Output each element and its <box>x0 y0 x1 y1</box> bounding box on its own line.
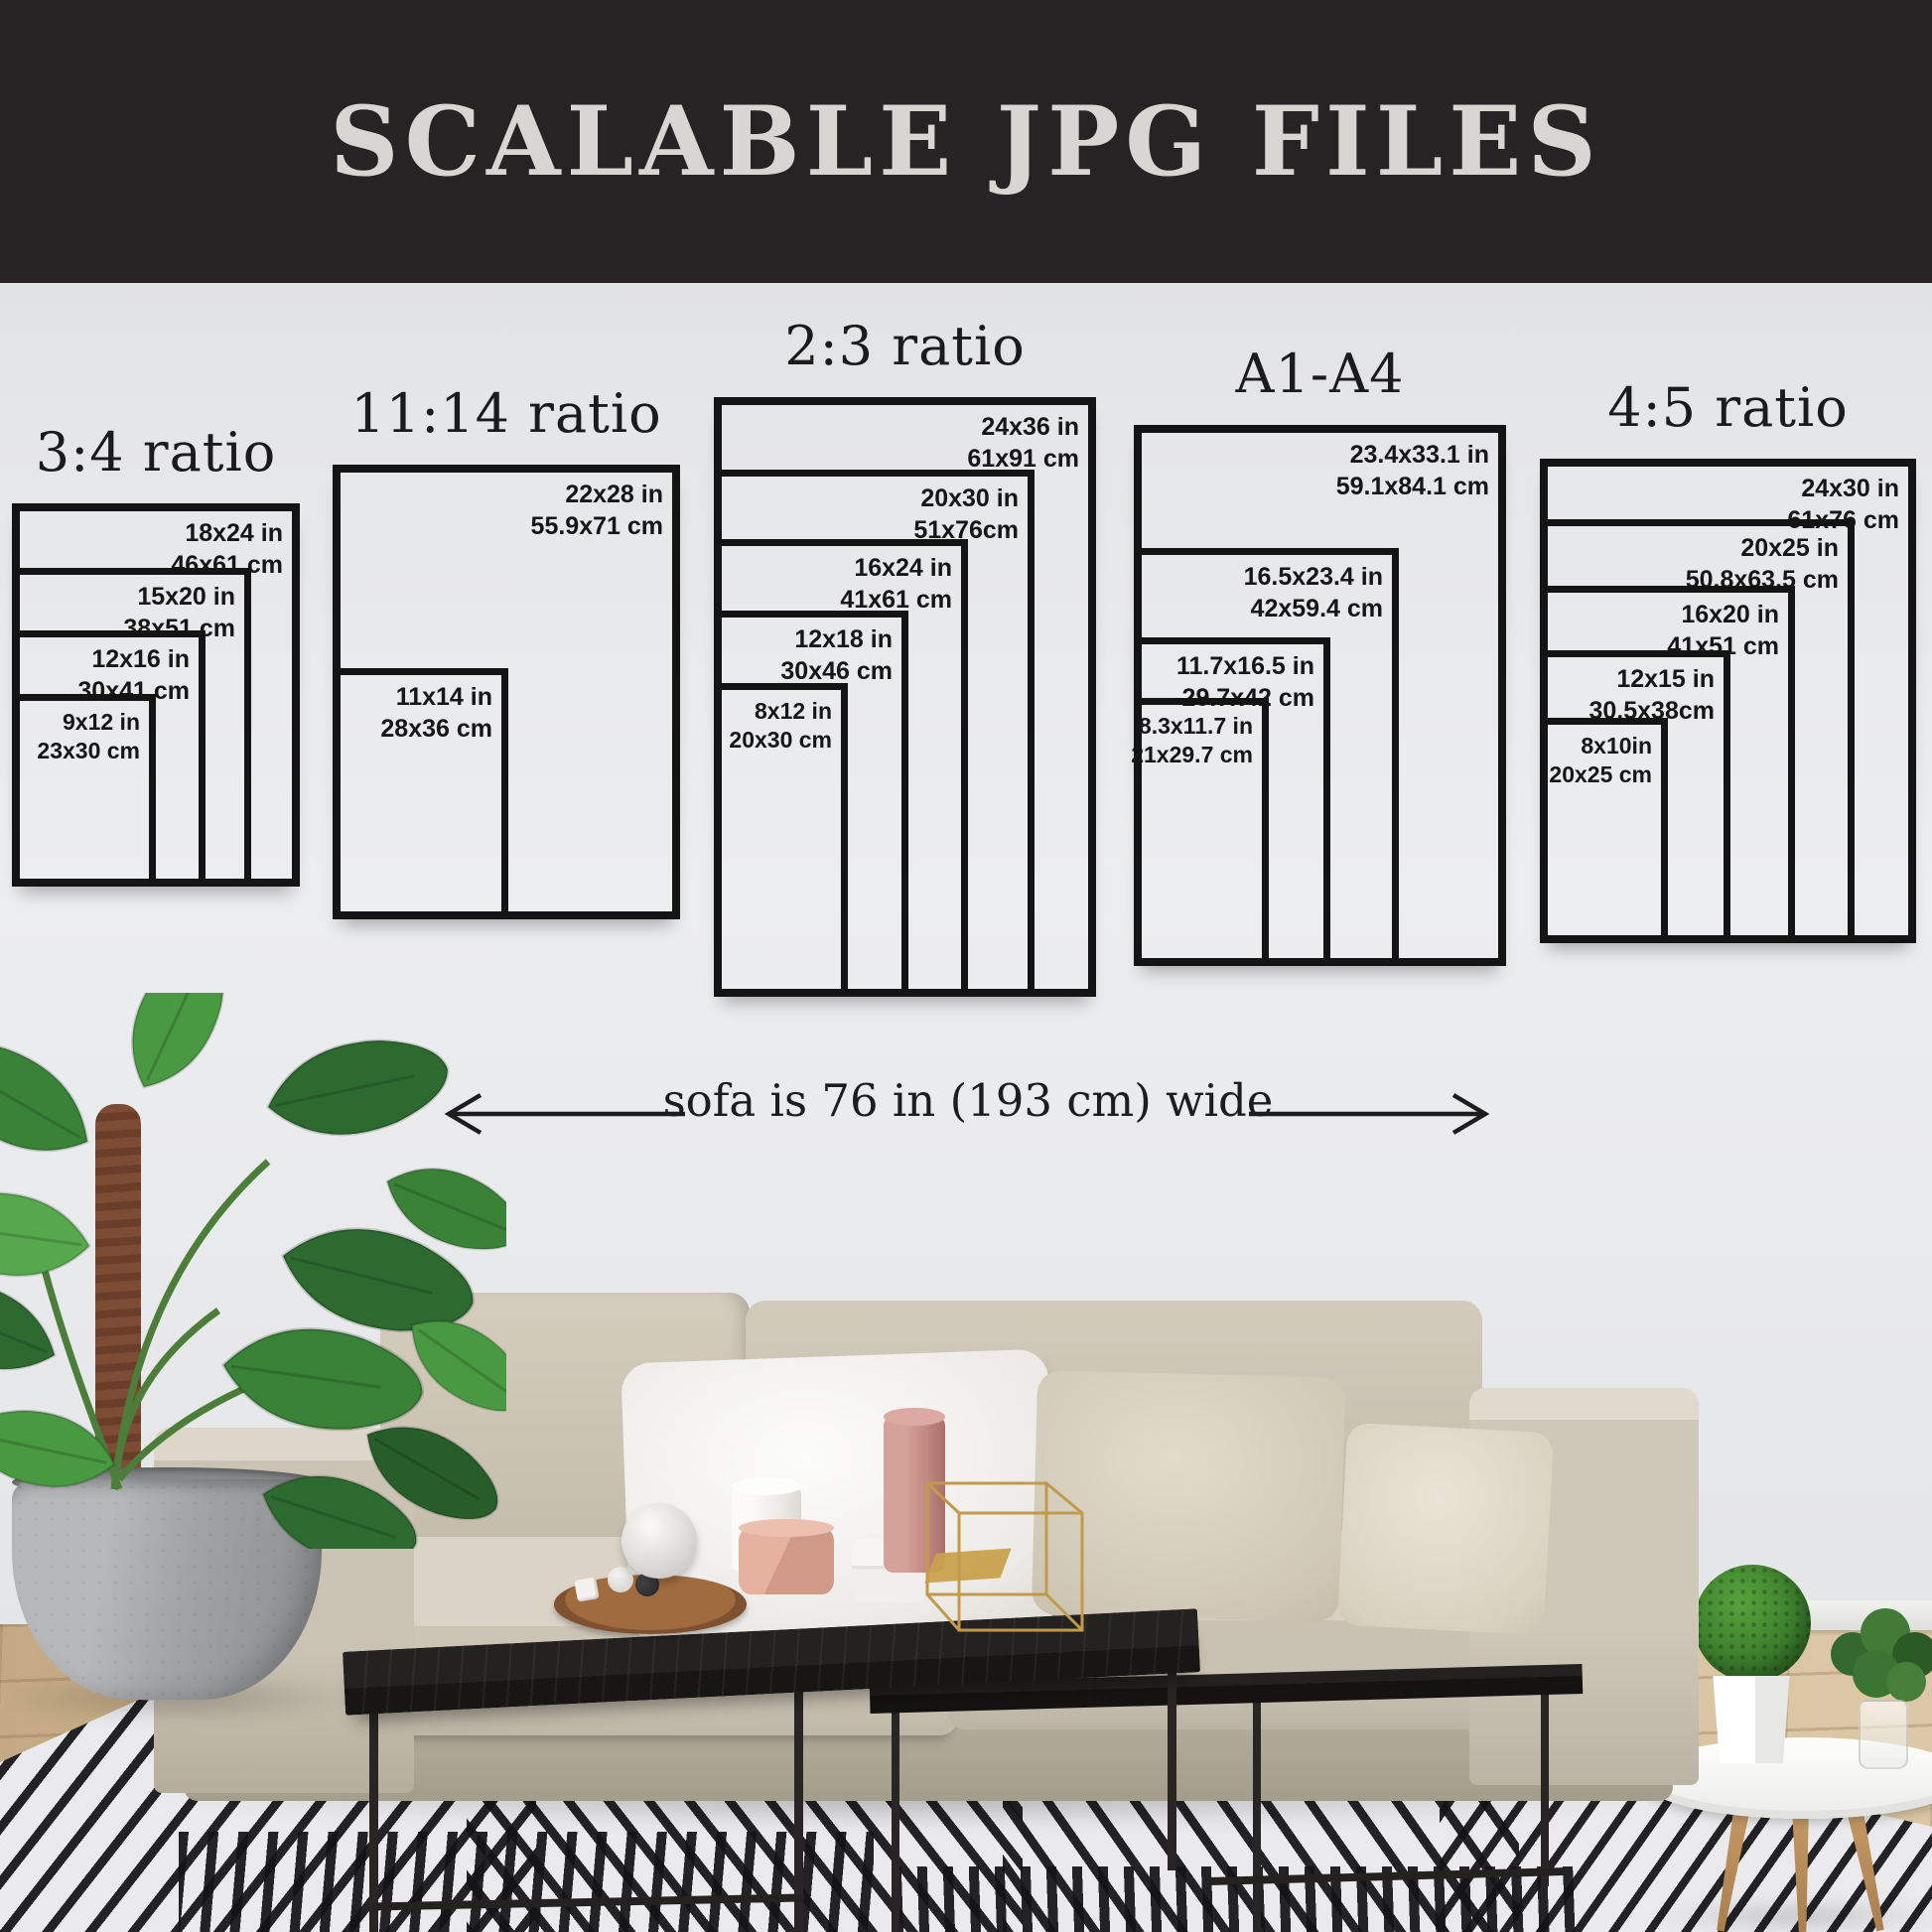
ratio-group-title: 4:5 ratio <box>1607 376 1849 439</box>
size-cm: 20x25 cm <box>1549 760 1652 789</box>
size-inches: 15x20 in <box>123 582 235 614</box>
coffee-table-leg <box>1168 1656 1176 1870</box>
white-planter <box>1710 1676 1793 1763</box>
size-inches: 16x20 in <box>1667 600 1779 631</box>
size-inches: 8x12 in <box>729 697 832 726</box>
size-inches: 18x24 in <box>171 518 283 550</box>
cream-pillow <box>1337 1423 1554 1636</box>
size-inches: 8.3x11.7 in <box>1131 712 1253 741</box>
size-inches: 12x15 in <box>1588 664 1715 696</box>
size-label: 9x12 in23x30 cm <box>37 708 140 765</box>
size-inches: 11.7x16.5 in <box>1176 651 1314 683</box>
ratio-group-3-4: 3:4 ratio 18x24 in46x61 cm 15x20 in38x51… <box>12 503 300 887</box>
size-inches: 20x30 in <box>913 483 1019 515</box>
size-inches: 20x25 in <box>1686 533 1839 565</box>
size-label: 11x14 in28x36 cm <box>380 682 492 745</box>
size-inches: 24x30 in <box>1787 474 1899 505</box>
gold-wire-cube <box>919 1477 1088 1636</box>
coffee-table-leg <box>892 1690 899 1932</box>
ratio-group-4-5: 4:5 ratio 24x30 in61x76 cm 20x25 in50.8x… <box>1540 459 1916 943</box>
banner: SCALABLE JPG FILES <box>0 0 1932 283</box>
ratio-group-a1-a4: A1-A4 23.4x33.1 in59.1x84.1 cm 16.5x23.4… <box>1134 425 1506 966</box>
coffee-table-leg <box>1541 1684 1549 1886</box>
size-cm: 21x29.7 cm <box>1131 741 1253 769</box>
size-label: 22x28 in55.9x71 cm <box>531 480 663 542</box>
poster-scene: SCALABLE JPG FILES 3:4 ratio 18x24 in46x… <box>0 0 1932 1932</box>
size-cm: 59.1x84.1 cm <box>1336 472 1489 503</box>
ratio-group-title: 3:4 ratio <box>36 421 277 483</box>
size-inches: 24x36 in <box>967 412 1079 444</box>
size-label: 24x36 in61x91 cm <box>967 412 1079 475</box>
size-inches: 16x24 in <box>840 553 952 585</box>
glass-vase <box>1859 1700 1908 1769</box>
monstera-leaves <box>0 993 506 1549</box>
small-marble-ball <box>608 1567 633 1592</box>
size-cm: 20x30 cm <box>729 726 832 755</box>
bouquet-bloom <box>1886 1662 1926 1702</box>
size-inches: 9x12 in <box>37 708 140 737</box>
size-inches: 16.5x23.4 in <box>1244 562 1383 594</box>
moss-ball-plant <box>1694 1565 1811 1682</box>
ratio-group-title: A1-A4 <box>1236 343 1405 405</box>
size-frame: 9x12 in23x30 cm <box>12 694 156 887</box>
size-frame: 8x10in20x25 cm <box>1540 718 1668 943</box>
green-bouquet <box>1827 1606 1932 1714</box>
size-inches: 12x18 in <box>780 624 893 656</box>
size-cm: 55.9x71 cm <box>531 511 663 543</box>
coffee-table-leg <box>369 1694 378 1932</box>
size-label: 23.4x33.1 in59.1x84.1 cm <box>1336 440 1489 502</box>
size-inches: 8x10in <box>1549 732 1652 760</box>
size-label: 8.3x11.7 in21x29.7 cm <box>1131 712 1253 769</box>
side-table-shadow <box>1648 1902 1932 1930</box>
ratio-group-11-14: 11:14 ratio 22x28 in55.9x71 cm 11x14 in2… <box>333 465 680 919</box>
size-inches: 23.4x33.1 in <box>1336 440 1489 472</box>
size-frame: 11x14 in28x36 cm <box>333 668 508 919</box>
pink-round-box <box>739 1527 834 1594</box>
size-inches: 11x14 in <box>380 682 492 714</box>
rug-stripe-patch <box>179 1832 874 1932</box>
size-cm: 23x30 cm <box>37 737 140 765</box>
ratio-group-2-3: 2:3 ratio 24x36 in61x91 cm 20x30 in51x76… <box>714 397 1096 997</box>
size-cm: 28x36 cm <box>380 714 492 746</box>
right-arrow-icon <box>1249 1090 1497 1138</box>
sofa-width-note: sofa is 76 in (193 cm) wide <box>650 1074 1286 1127</box>
dice <box>574 1577 599 1601</box>
size-cm: 42x59.4 cm <box>1244 594 1383 625</box>
ratio-group-title: 11:14 ratio <box>350 382 661 445</box>
size-label: 20x30 in51x76cm <box>913 483 1019 546</box>
size-label: 16x24 in41x61 cm <box>840 553 952 616</box>
size-frame: 8x12 in20x30 cm <box>714 683 848 997</box>
size-label: 8x10in20x25 cm <box>1549 732 1652 789</box>
size-inches: 12x16 in <box>77 644 190 676</box>
ratio-group-title: 2:3 ratio <box>784 315 1026 377</box>
size-label: 8x12 in20x30 cm <box>729 697 832 755</box>
size-frame: 8.3x11.7 in21x29.7 cm <box>1134 698 1269 966</box>
size-label: 12x18 in30x46 cm <box>780 624 893 687</box>
marble-sphere <box>621 1503 697 1579</box>
banner-title: SCALABLE JPG FILES <box>0 0 1932 283</box>
size-label: 16.5x23.4 in42x59.4 cm <box>1244 562 1383 624</box>
coffee-table-leg <box>1253 1696 1261 1932</box>
size-inches: 22x28 in <box>531 480 663 511</box>
